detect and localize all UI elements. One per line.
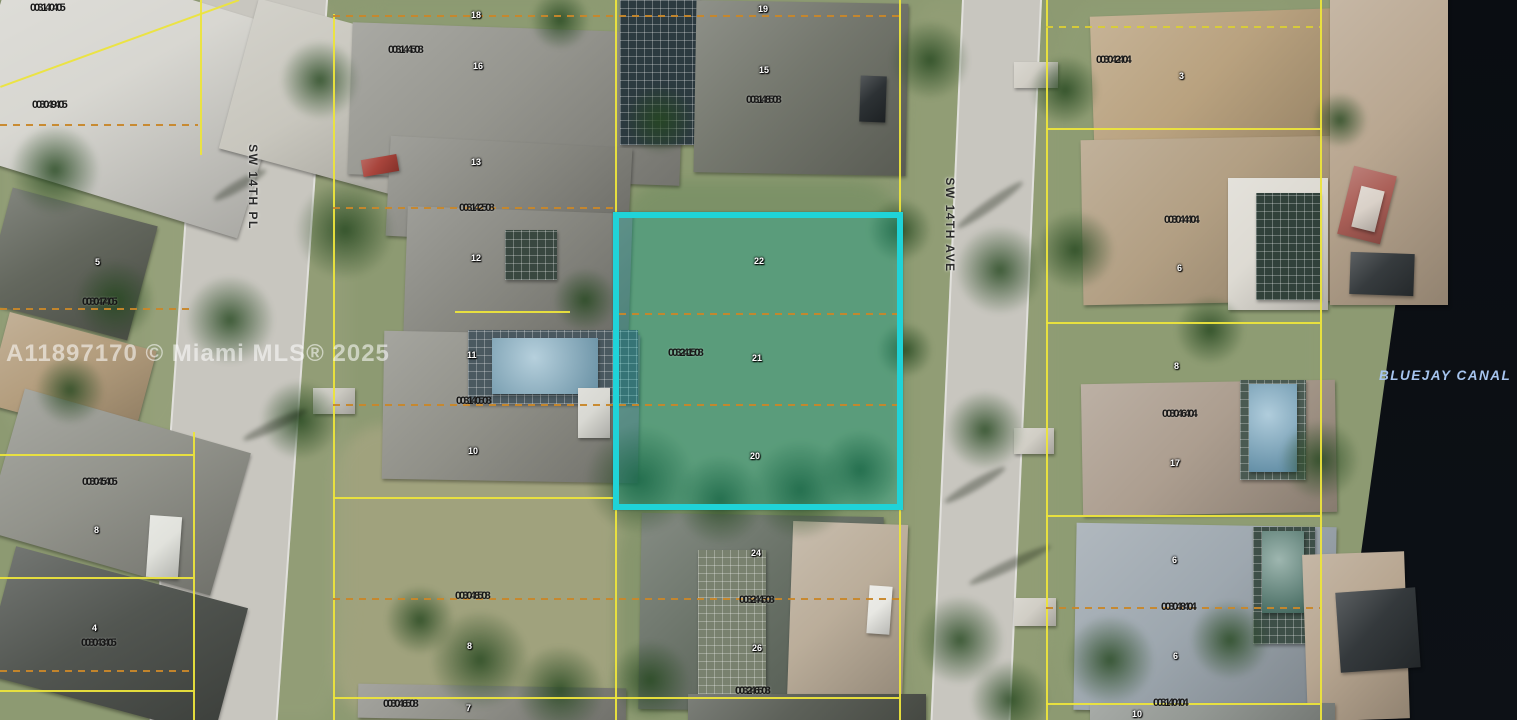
parcel-boundary-line bbox=[333, 497, 615, 499]
tree bbox=[10, 125, 100, 215]
lot-line-dashed bbox=[0, 124, 198, 126]
tree bbox=[530, 0, 590, 50]
lot-line-dashed bbox=[333, 598, 899, 600]
lot-line-dashed bbox=[1046, 26, 1320, 28]
parcel-boundary-line bbox=[1046, 128, 1322, 130]
tree bbox=[295, 180, 395, 280]
building-roof bbox=[146, 515, 182, 579]
tree bbox=[625, 85, 695, 155]
tree bbox=[515, 645, 605, 720]
parcel-boundary-line bbox=[193, 432, 195, 720]
parcel-boundary-line bbox=[0, 690, 193, 692]
highlighted-parcel-outline bbox=[613, 212, 903, 510]
tree bbox=[945, 390, 1025, 470]
building-roof bbox=[1090, 703, 1335, 720]
parcel-boundary-line bbox=[1320, 0, 1322, 720]
building-roof bbox=[866, 585, 892, 634]
building-roof bbox=[859, 76, 887, 123]
tree bbox=[553, 268, 617, 332]
parcel-boundary-line bbox=[0, 454, 193, 456]
tree bbox=[610, 640, 690, 720]
tree bbox=[1190, 600, 1270, 680]
lot-line-dashed bbox=[0, 308, 193, 310]
parcel-boundary-line bbox=[1046, 515, 1320, 517]
lot-line-dashed bbox=[1046, 607, 1320, 609]
tree bbox=[1030, 55, 1100, 125]
building-roof bbox=[1335, 587, 1420, 672]
parcel-boundary-line bbox=[1046, 703, 1320, 705]
parcel-boundary-line bbox=[1046, 0, 1048, 720]
lot-line-dashed bbox=[333, 207, 615, 209]
lot-line-dashed bbox=[333, 15, 899, 17]
building-roof bbox=[1014, 598, 1056, 626]
tree bbox=[970, 660, 1050, 720]
tree bbox=[1065, 615, 1155, 705]
tree bbox=[385, 585, 455, 655]
tree bbox=[280, 40, 360, 120]
mls-watermark: A11897170 © Miami MLS® 2025 bbox=[6, 340, 390, 368]
pool-enclosure bbox=[698, 550, 766, 702]
pool-enclosure bbox=[1256, 193, 1320, 300]
parcel-boundary-line bbox=[1046, 322, 1320, 324]
building-roof bbox=[1349, 252, 1414, 296]
swimming-pool bbox=[492, 338, 598, 394]
tree bbox=[75, 260, 155, 340]
lot-line-dashed bbox=[0, 670, 193, 672]
parcel-boundary-line bbox=[200, 0, 202, 155]
tree bbox=[890, 20, 970, 100]
tree bbox=[955, 225, 1045, 315]
parcel-boundary-line bbox=[333, 697, 899, 699]
tree bbox=[1175, 295, 1245, 365]
pool-enclosure bbox=[505, 230, 557, 280]
parcel-boundary-line bbox=[455, 311, 570, 313]
parcel-boundary-line bbox=[0, 577, 193, 579]
lot-line-dashed bbox=[333, 404, 615, 406]
aerial-parcel-map[interactable]: SW 14TH PL SW 14TH AVE BLUEJAY CANAL 034… bbox=[0, 0, 1517, 720]
